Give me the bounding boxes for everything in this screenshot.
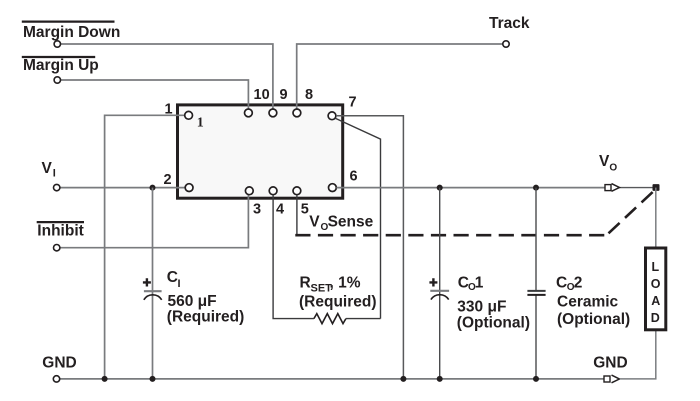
svg-text:O: O (651, 277, 661, 291)
svg-text:7: 7 (349, 95, 357, 111)
svg-text:C: C (556, 275, 567, 292)
svg-text:2: 2 (164, 172, 172, 188)
svg-text:9: 9 (280, 87, 288, 103)
svg-text:Ceramic: Ceramic (557, 294, 619, 311)
svg-text:C: C (167, 269, 178, 286)
svg-text:1: 1 (165, 102, 173, 118)
svg-text:I: I (53, 168, 56, 180)
svg-text:Margin Down: Margin Down (23, 24, 120, 41)
svg-text:O: O (609, 163, 617, 174)
svg-text:(Optional): (Optional) (557, 311, 630, 328)
svg-text:L: L (652, 260, 660, 274)
svg-text:A: A (651, 294, 660, 308)
svg-text:8: 8 (305, 87, 313, 103)
svg-text:I: I (178, 278, 181, 290)
svg-text:V: V (309, 214, 320, 231)
svg-text:Inhibit: Inhibit (37, 223, 84, 240)
svg-text:2: 2 (574, 274, 583, 291)
svg-text:Sense: Sense (328, 214, 374, 231)
svg-text:4: 4 (276, 202, 284, 218)
svg-text:(Optional): (Optional) (457, 314, 530, 331)
svg-text:D: D (651, 311, 660, 325)
svg-text:1: 1 (475, 274, 484, 291)
svg-text:R: R (300, 275, 311, 292)
svg-text:V: V (42, 160, 53, 177)
svg-text:6: 6 (350, 168, 358, 184)
svg-text:, 1%: , 1% (330, 275, 361, 292)
svg-text:Margin Up: Margin Up (23, 57, 99, 74)
svg-text:5: 5 (301, 202, 309, 218)
svg-text:3: 3 (253, 202, 261, 218)
svg-text:GND: GND (42, 355, 76, 372)
svg-text:1: 1 (197, 115, 204, 130)
svg-text:330 μF: 330 μF (457, 298, 506, 315)
svg-text:Track: Track (489, 15, 530, 32)
svg-text:(Required): (Required) (299, 294, 377, 311)
svg-text:GND: GND (593, 355, 627, 372)
svg-text:(Required): (Required) (167, 308, 245, 325)
svg-text:10: 10 (254, 87, 270, 103)
svg-text:V: V (599, 153, 610, 170)
